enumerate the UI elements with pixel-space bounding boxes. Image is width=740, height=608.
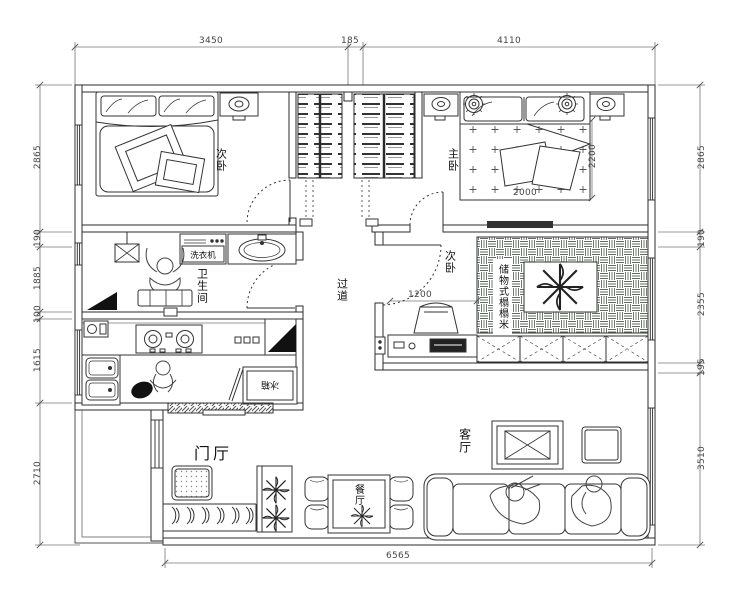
plant-icon <box>263 477 289 503</box>
dining-chair <box>305 477 329 501</box>
exterior-outline <box>75 410 163 543</box>
tv-symbol <box>492 421 563 469</box>
fridge-label: 冰箱 <box>254 379 286 392</box>
dim-left-1: 2865 <box>33 137 43 177</box>
bedroom-topleft-furniture <box>96 92 258 196</box>
picture-frame-symbol <box>582 427 621 463</box>
plant-icon <box>537 264 583 310</box>
dim-top-1: 3450 <box>181 36 241 46</box>
sofa-symbol <box>424 474 650 540</box>
nightstand-symbol <box>220 93 258 120</box>
wardrobes <box>298 94 414 178</box>
dim-bottom: 6565 <box>368 551 428 561</box>
room-label-master-bedroom: 主卧 <box>447 148 459 172</box>
room-label-bathroom: 卫生间 <box>196 268 208 304</box>
room-label-bedroom-tatami: 次卧 <box>444 250 456 274</box>
room-label-hallway: 过道 <box>336 278 348 302</box>
dining-chair <box>389 477 413 501</box>
bathroom-sink-symbol <box>228 234 296 264</box>
shoe-rack-symbol <box>163 504 256 531</box>
floor-plan: 3450 185 4110 6565 2865 190 1885 100 161… <box>0 0 740 608</box>
dining-chair <box>305 505 329 529</box>
threshold-mat <box>487 221 553 228</box>
dim-left-6: 2710 <box>33 453 43 493</box>
desk-chair-symbol <box>414 303 458 333</box>
dim-right-1: 2865 <box>697 137 707 177</box>
double-bed-symbol <box>96 92 218 196</box>
under-window-cabinets <box>477 336 648 362</box>
kitchen-sink-symbol <box>82 355 120 405</box>
dim-right-5: 3510 <box>697 438 707 478</box>
room-label-dining-room: 餐厅 <box>352 484 363 506</box>
dim-top-2: 185 <box>330 36 370 46</box>
plant-icon <box>263 505 289 531</box>
desk-symbol <box>388 335 477 357</box>
person-cooking-figure <box>129 361 176 401</box>
nightstand-symbol <box>588 94 624 120</box>
master-bed-symbol <box>460 92 590 200</box>
gas-stove-symbol <box>136 325 202 353</box>
corner-flue <box>87 292 117 310</box>
dim-left-2: 190 <box>33 218 43 258</box>
dim-right-2: 190 <box>697 218 707 258</box>
floor-plan-drawing <box>0 0 740 608</box>
dim-left-4: 100 <box>33 294 43 334</box>
nightstand-symbol <box>424 94 458 120</box>
plant-stand-symbol <box>257 466 292 532</box>
foyer-furniture <box>163 466 292 532</box>
doormat-symbol <box>172 466 212 500</box>
dim-tatami-clearance: 1200 <box>395 290 445 300</box>
room-label-foyer: 门厅 <box>194 440 232 464</box>
dim-top-3: 4110 <box>479 36 539 46</box>
bathroom-fixtures <box>87 232 296 316</box>
dining-chair <box>389 505 413 529</box>
kitchen-fixtures <box>82 319 297 415</box>
dim-right-4: 195 <box>697 347 707 387</box>
tatami-cabinet-label: 储物式榻榻米 <box>496 264 507 330</box>
room-label-bedroom-topleft: 次卧 <box>215 148 227 172</box>
room-label-living-room: 客厅 <box>458 428 471 454</box>
dim-left-3: 1885 <box>33 258 43 298</box>
dim-left-5: 1615 <box>33 340 43 380</box>
washing-machine-label: 洗衣机 <box>182 249 224 261</box>
shower-symbol <box>115 232 139 262</box>
dim-bed-length: 2200 <box>588 136 598 176</box>
plant-icon <box>351 505 373 527</box>
dim-bed-width: 2000 <box>505 188 545 198</box>
entry-door-panel <box>151 420 163 468</box>
dim-right-3: 2355 <box>697 284 707 324</box>
